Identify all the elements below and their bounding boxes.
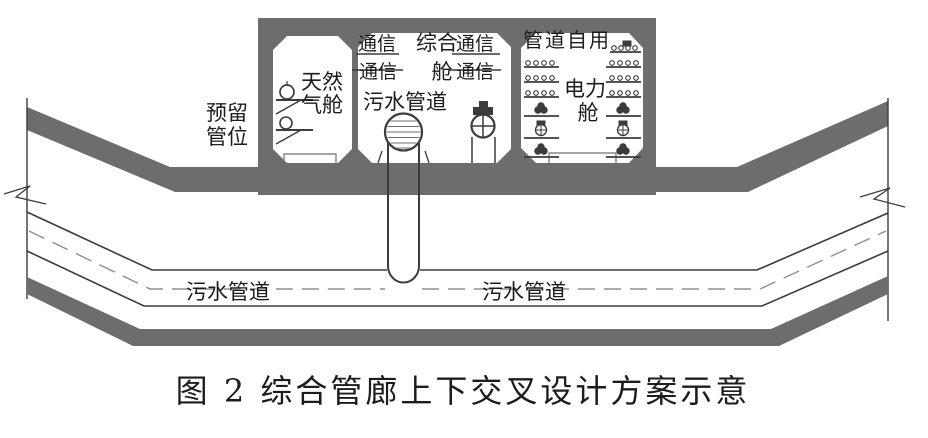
right-break-mark (860, 188, 905, 207)
gas-compartment: 天然 气舱 (273, 36, 352, 163)
utility-compartment-label-line1: 综合 (416, 31, 458, 55)
pipe-bedding-slab (27, 276, 888, 346)
gas-compartment-label-line1: 天然 (301, 70, 343, 94)
gas-compartment-label-line2: 气舱 (301, 93, 343, 117)
comm-label-bottom-right: 通信 (456, 61, 494, 83)
utility-compartment: 通信 通信 通信 通信 综合 舱 污水管道 (352, 31, 511, 163)
comm-label-bottom-left: 通信 (359, 61, 397, 83)
sewage-pipe-label-in-tunnel: 污水管道 (363, 90, 447, 114)
lower-sewage-pipe (27, 212, 888, 346)
power-top-label: 管道自用 (523, 28, 611, 52)
pipe-crown-line (420, 213, 888, 270)
diagram-canvas: 天然 气舱 通信 通信 通信 通信 综合 舱 污水管道 (0, 0, 928, 438)
lower-pipe-label-left: 污水管道 (186, 280, 270, 304)
power-compartment-label-line1: 电力 (564, 77, 606, 101)
pipe-crown-line (27, 212, 387, 270)
comm-label-top-right: 通信 (456, 33, 494, 55)
figure-utility-tunnel-crossing: 天然 气舱 通信 通信 通信 通信 综合 舱 污水管道 (0, 0, 928, 438)
tunnel-right-approach-slab (656, 101, 888, 192)
lower-pipe-label-right: 污水管道 (482, 280, 566, 304)
reserved-duct-label-line2: 管位 (206, 125, 248, 149)
reserved-duct-label-line1: 预留 (206, 101, 248, 125)
comm-label-top-left: 通信 (358, 33, 396, 55)
pipe-invert-line (27, 251, 888, 306)
power-compartment: 管道自用 电力 舱 (521, 28, 643, 163)
figure-caption: 图 2 综合管廊上下交叉设计方案示意 (176, 372, 751, 410)
power-compartment-label-line2: 舱 (578, 101, 599, 125)
utility-compartment-label-line2: 舱 (432, 60, 453, 84)
left-break-mark (4, 186, 46, 204)
